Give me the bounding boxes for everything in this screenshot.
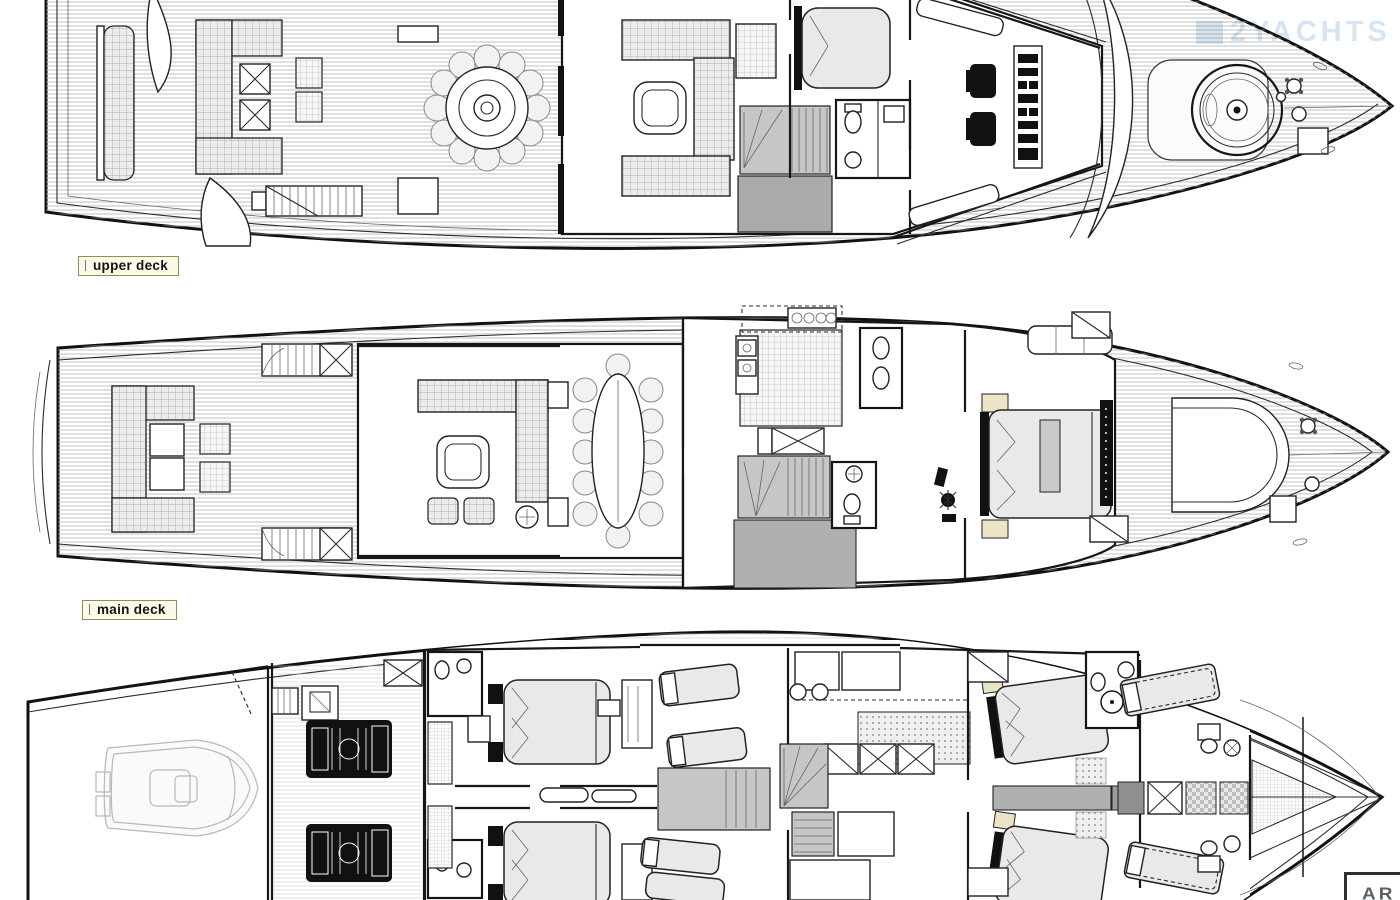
owner-headboard-wall xyxy=(1100,400,1113,506)
day-head xyxy=(832,462,876,528)
engine-room xyxy=(272,652,424,900)
upper-deck-label: upper deck xyxy=(78,256,179,276)
tender-boat xyxy=(96,740,258,836)
salon-coffee-table xyxy=(437,436,489,488)
main-deck-label-text: main deck xyxy=(97,602,166,617)
owner-tv-cabinet xyxy=(1040,420,1060,492)
deck-plans-drawing xyxy=(0,0,1400,900)
salon-armchair-1 xyxy=(428,498,458,524)
upper-sideboard-aft xyxy=(398,26,438,42)
guest-bed-port xyxy=(488,680,610,764)
main-deck-label: main deck xyxy=(82,600,177,620)
lower-stair-slab xyxy=(658,768,770,830)
lower-deck-plan xyxy=(28,630,1382,900)
salon-armchair-2 xyxy=(464,498,494,524)
galley-wc xyxy=(758,428,824,454)
brand-logo: AR xyxy=(1344,872,1400,900)
main-stairs-stbd xyxy=(262,528,352,560)
main-stair-lobby xyxy=(734,520,856,588)
deck-plan-sheet: 2YACHTS upper deck main deck AR xyxy=(0,0,1400,900)
upper-mid-staircase xyxy=(740,106,830,174)
bridge-bathroom xyxy=(836,100,910,178)
upper-pantry xyxy=(736,24,776,78)
sky-lounge-table xyxy=(634,82,686,134)
crew-cabin-aft xyxy=(790,860,870,900)
bar-pantry xyxy=(860,328,902,408)
upper-deck-plan xyxy=(46,0,1396,270)
dining-table xyxy=(573,354,663,548)
main-stairs-port xyxy=(262,344,352,376)
main-staircase xyxy=(738,456,830,518)
fwd-closet-2 xyxy=(968,868,1008,896)
upper-deck-label-text: upper deck xyxy=(93,258,168,273)
fwd-corridor xyxy=(993,786,1111,810)
engine-stbd xyxy=(306,824,392,882)
brand-logo-text: AR xyxy=(1347,885,1395,900)
twin-cabin-stbd xyxy=(637,837,729,900)
label-tick xyxy=(85,260,86,271)
salon-side-table xyxy=(516,506,538,528)
guest-bed-stbd xyxy=(488,822,610,900)
bow-horseshoe-seat xyxy=(1172,398,1289,512)
bow-jacuzzi xyxy=(1148,60,1282,160)
label-tick xyxy=(89,604,90,615)
helm-console xyxy=(1014,46,1042,168)
guest-wardrobe xyxy=(468,716,490,742)
upper-stair-void xyxy=(738,176,832,232)
engine-port xyxy=(306,720,392,778)
main-deck-plan xyxy=(33,300,1398,610)
upper-aft-staircase xyxy=(252,186,362,216)
upper-sideboard-fwd xyxy=(398,178,438,214)
